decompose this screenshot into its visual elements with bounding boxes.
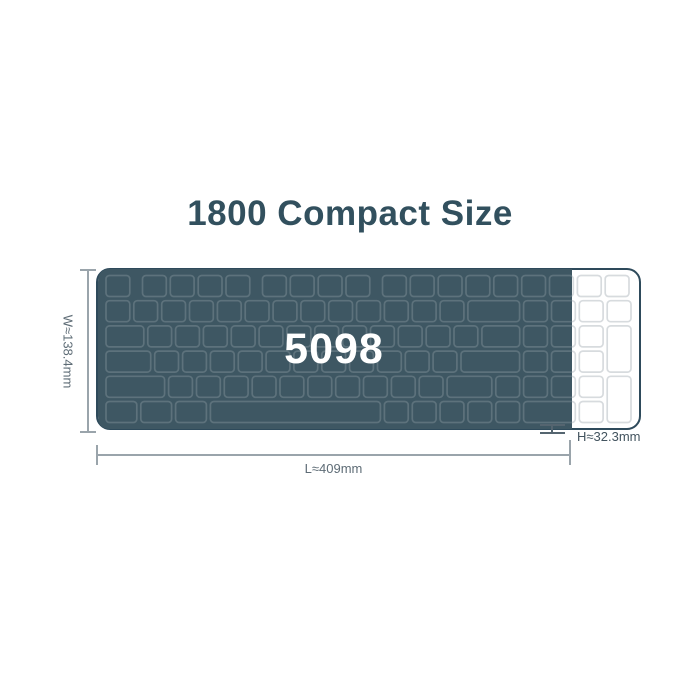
product-size-diagram: 1800 Compact Size 5098 W≈138.4mm L≈409mm… bbox=[0, 0, 700, 700]
length-measure-line bbox=[97, 454, 570, 456]
length-label: L≈409mm bbox=[97, 461, 570, 476]
width-label-wrap: W≈138.4mm bbox=[50, 270, 86, 432]
page-title: 1800 Compact Size bbox=[0, 194, 700, 234]
width-label: W≈138.4mm bbox=[61, 314, 76, 388]
model-number: 5098 bbox=[96, 268, 572, 430]
height-measure-cap-bottom bbox=[540, 432, 565, 434]
height-label: H≈32.3mm bbox=[577, 429, 640, 444]
width-measure-line bbox=[87, 270, 89, 432]
